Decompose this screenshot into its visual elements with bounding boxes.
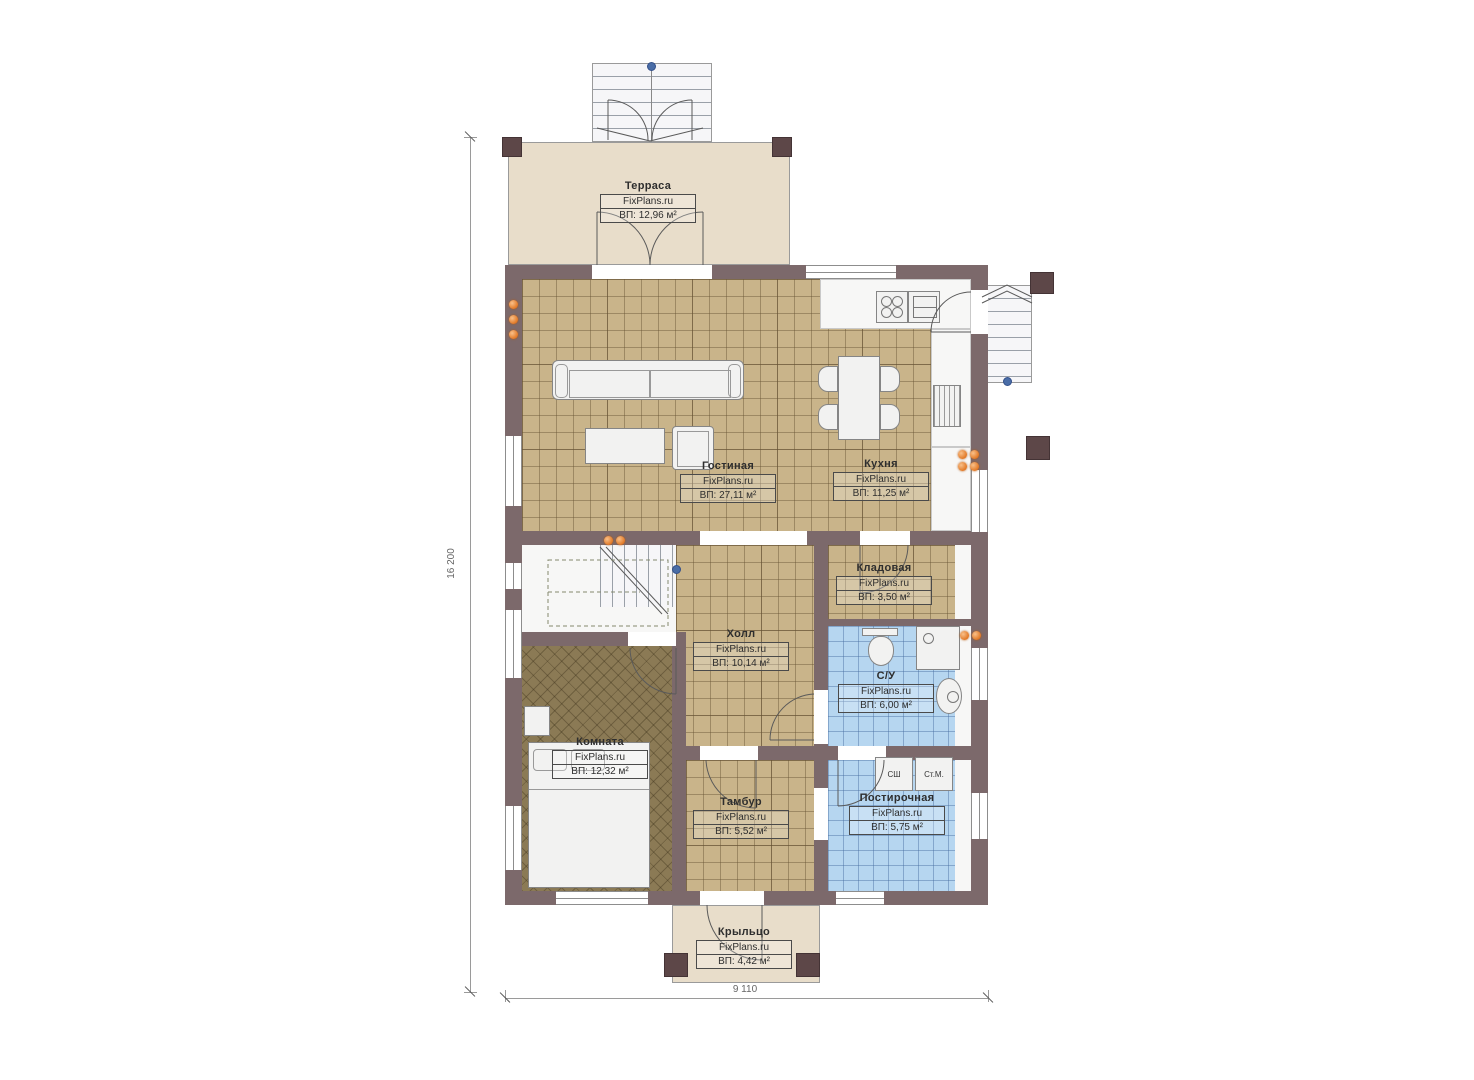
bedroom-door-opening bbox=[628, 632, 676, 646]
burner bbox=[881, 307, 892, 318]
radiator-icon bbox=[509, 330, 518, 339]
dryer: СШ bbox=[875, 757, 913, 791]
room-area: ВП: 4,42 м² bbox=[697, 955, 791, 968]
chair bbox=[818, 404, 838, 430]
room-area: ВП: 5,75 м² bbox=[850, 821, 944, 834]
room-label-hall: Холл FixPlans.ru ВП: 10,14 м² bbox=[686, 628, 796, 671]
terrace-stairs-centerline bbox=[651, 63, 652, 142]
vestibule-door-opening bbox=[700, 746, 758, 760]
room-area: ВП: 3,50 м² bbox=[837, 591, 931, 604]
room-label-storage: Кладовая FixPlans.ru ВП: 3,50 м² bbox=[829, 562, 939, 605]
chair bbox=[880, 366, 900, 392]
storage-door-opening bbox=[860, 531, 910, 545]
section-marker-icon bbox=[1003, 377, 1012, 386]
room-label-kitchen: Кухня FixPlans.ru ВП: 11,25 м² bbox=[826, 458, 936, 501]
sofa bbox=[552, 360, 744, 400]
brand-link: FixPlans.ru bbox=[553, 751, 647, 765]
radiator-icon bbox=[970, 450, 979, 459]
room-label-vestibule: Тамбур FixPlans.ru ВП: 5,52 м² bbox=[686, 796, 796, 839]
room-name: Тамбур bbox=[686, 796, 796, 808]
wall-bedroom-right bbox=[672, 632, 686, 891]
burner bbox=[881, 296, 892, 307]
nightstand bbox=[524, 706, 550, 736]
sink-basin bbox=[913, 307, 937, 318]
storage-margin bbox=[955, 545, 971, 619]
interior-stairs bbox=[600, 545, 676, 607]
terrace-door-opening bbox=[592, 265, 712, 279]
brand-link: FixPlans.ru bbox=[681, 475, 775, 489]
yard-pillar bbox=[1026, 436, 1050, 460]
chair bbox=[880, 404, 900, 430]
kitchen-window-right bbox=[971, 470, 988, 532]
toilet-tank bbox=[862, 628, 898, 636]
laundry-window-right bbox=[971, 793, 988, 839]
bathroom-window bbox=[971, 648, 988, 700]
radiator-icon bbox=[509, 300, 518, 309]
blanket-line bbox=[529, 789, 649, 790]
room-area: ВП: 6,00 м² bbox=[839, 699, 933, 712]
stove-icon bbox=[876, 291, 908, 323]
room-name: Крыльцо bbox=[689, 926, 799, 938]
porch-pillar bbox=[796, 953, 820, 977]
room-name: Кухня bbox=[826, 458, 936, 470]
bedroom-window-left bbox=[505, 806, 522, 870]
laundry-margin bbox=[955, 760, 971, 891]
oven-icon bbox=[933, 385, 961, 427]
radiator-icon bbox=[958, 462, 967, 471]
radiator-icon bbox=[509, 315, 518, 324]
floor-plan: 16 200 9 110 bbox=[0, 0, 1474, 1080]
height-dimension-label: 16 200 bbox=[446, 548, 457, 579]
room-label-living: Гостиная FixPlans.ru ВП: 27,11 м² bbox=[673, 460, 783, 503]
entrance-door-opening bbox=[700, 891, 764, 905]
stair-window-small bbox=[505, 563, 522, 589]
hall-opening bbox=[700, 531, 807, 545]
basin-drain bbox=[947, 691, 959, 703]
dryer-label: СШ bbox=[876, 758, 912, 790]
kitchen-passage-floor bbox=[931, 447, 971, 531]
washing-machine: Ст.М. bbox=[915, 757, 953, 791]
stair-window bbox=[505, 610, 522, 678]
sofa-armrest bbox=[555, 364, 568, 398]
room-label-bathroom: С/У FixPlans.ru ВП: 6,00 м² bbox=[831, 670, 941, 713]
coffee-table bbox=[585, 428, 665, 464]
brand-link: FixPlans.ru bbox=[694, 643, 788, 657]
shower-tray-icon bbox=[916, 626, 960, 670]
kitchen-window bbox=[806, 265, 896, 279]
porch-pillar bbox=[664, 953, 688, 977]
burner bbox=[892, 296, 903, 307]
section-marker-icon bbox=[647, 62, 656, 71]
dining-table bbox=[838, 356, 880, 440]
wall-top bbox=[505, 265, 988, 279]
room-name: Гостиная bbox=[673, 460, 783, 472]
room-label-porch: Крыльцо FixPlans.ru ВП: 4,42 м² bbox=[689, 926, 799, 969]
room-area: ВП: 10,14 м² bbox=[694, 657, 788, 670]
kitchen-sink-icon bbox=[908, 291, 940, 323]
room-label-laundry: Постирочная FixPlans.ru ВП: 5,75 м² bbox=[842, 792, 952, 835]
width-dimension-label: 9 110 bbox=[700, 984, 790, 995]
sofa-cushion bbox=[650, 370, 731, 398]
radiator-icon bbox=[604, 536, 613, 545]
room-name: Терраса bbox=[593, 180, 703, 192]
burner bbox=[892, 307, 903, 318]
livingroom-window bbox=[505, 436, 522, 506]
brand-link: FixPlans.ru bbox=[839, 685, 933, 699]
room-name: С/У bbox=[831, 670, 941, 682]
room-area: ВП: 11,25 м² bbox=[834, 487, 928, 500]
brand-link: FixPlans.ru bbox=[694, 811, 788, 825]
radiator-icon bbox=[970, 462, 979, 471]
brand-link: FixPlans.ru bbox=[697, 941, 791, 955]
toilet-icon bbox=[868, 636, 894, 666]
terrace-pillar bbox=[772, 137, 792, 157]
shower-drain bbox=[923, 633, 934, 644]
radiator-icon bbox=[958, 450, 967, 459]
horizontal-dimension-line bbox=[505, 998, 988, 999]
chair bbox=[818, 366, 838, 392]
sofa-cushion bbox=[569, 370, 650, 398]
room-label-terrace: Терраса FixPlans.ru ВП: 12,96 м² bbox=[593, 180, 703, 223]
room-name: Постирочная bbox=[842, 792, 952, 804]
radiator-icon bbox=[616, 536, 625, 545]
brand-link: FixPlans.ru bbox=[601, 195, 695, 209]
room-name: Холл bbox=[686, 628, 796, 640]
vertical-dimension-line bbox=[470, 137, 471, 992]
bedroom-window-bottom bbox=[556, 891, 648, 905]
room-area: ВП: 27,11 м² bbox=[681, 489, 775, 502]
washer-label: Ст.М. bbox=[916, 758, 952, 790]
brand-link: FixPlans.ru bbox=[834, 473, 928, 487]
room-name: Комната bbox=[545, 736, 655, 748]
radiator-icon bbox=[960, 631, 969, 640]
radiator-icon bbox=[972, 631, 981, 640]
kitchen-exterior-door-opening bbox=[971, 290, 988, 334]
terrace-stairs bbox=[592, 63, 712, 142]
section-marker-icon bbox=[672, 565, 681, 574]
side-stairs bbox=[982, 285, 1032, 383]
laundry-window-bottom bbox=[836, 891, 884, 905]
wall-storage-bathroom bbox=[828, 619, 971, 626]
terrace-pillar bbox=[502, 137, 522, 157]
side-stairs-pillar bbox=[1030, 272, 1054, 294]
room-name: Кладовая bbox=[829, 562, 939, 574]
laundry-side-opening bbox=[814, 788, 828, 840]
brand-link: FixPlans.ru bbox=[850, 807, 944, 821]
room-area: ВП: 12,96 м² bbox=[601, 209, 695, 222]
bathroom-door-opening bbox=[814, 690, 828, 744]
brand-link: FixPlans.ru bbox=[837, 577, 931, 591]
room-label-bedroom: Комната FixPlans.ru ВП: 12,32 м² bbox=[545, 736, 655, 779]
room-area: ВП: 5,52 м² bbox=[694, 825, 788, 838]
room-area: ВП: 12,32 м² bbox=[553, 765, 647, 778]
